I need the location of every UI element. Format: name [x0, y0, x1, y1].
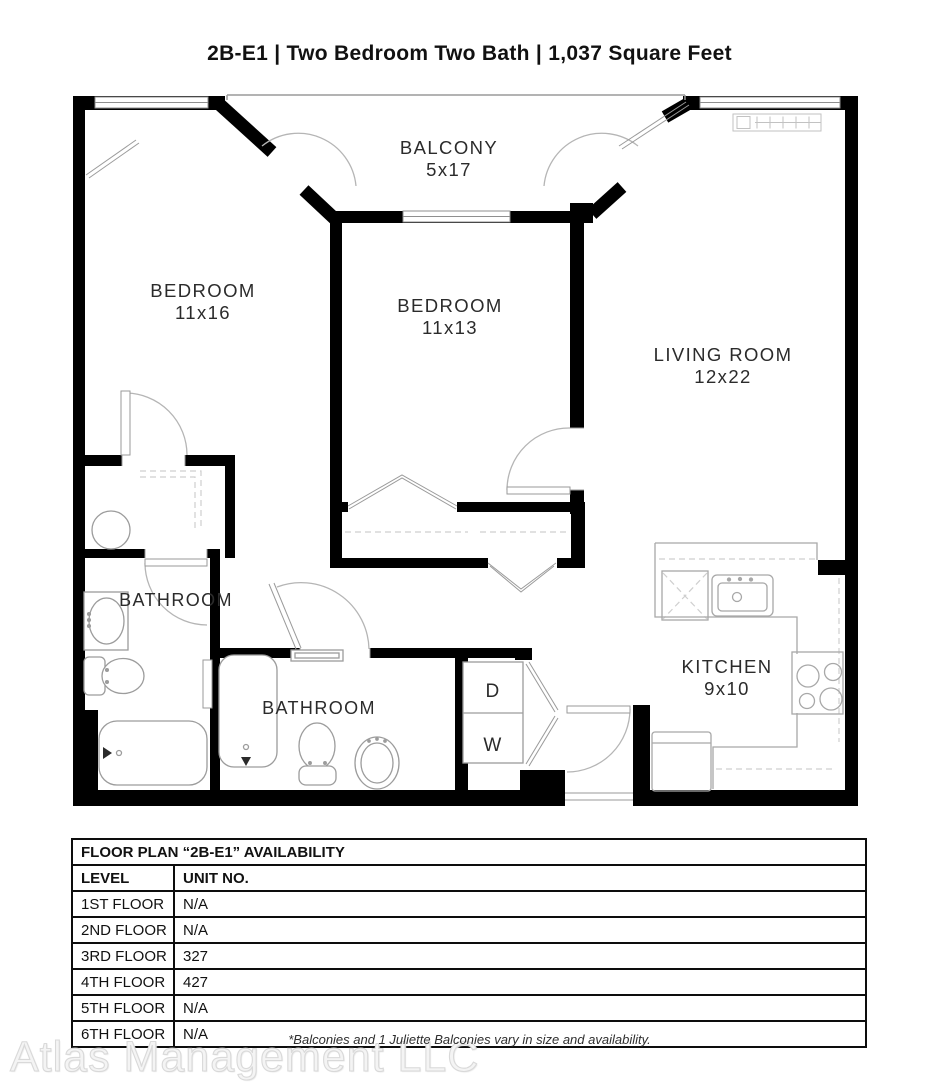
table-title: FLOOR PLAN “2B-E1” AVAILABILITY	[72, 839, 866, 865]
table-row: 3RD FLOOR 327	[72, 943, 866, 969]
level-cell: 2ND FLOOR	[72, 917, 174, 943]
floor-plan-drawing: BALCONY 5x17 BEDROOM 11x16 BEDROOM 11x13…	[0, 0, 939, 820]
unit-cell: 427	[174, 969, 866, 995]
unit-cell: 327	[174, 943, 866, 969]
door-leaves	[86, 102, 689, 713]
unit-cell: N/A	[174, 995, 866, 1021]
washer-label: W	[483, 735, 502, 756]
balcony-railing	[227, 95, 685, 100]
toilet	[84, 657, 144, 695]
table-row: 4TH FLOOR 427	[72, 969, 866, 995]
table-row: 5TH FLOOR N/A	[72, 995, 866, 1021]
stove	[792, 652, 843, 714]
sink	[355, 737, 399, 789]
column-header-level: LEVEL	[72, 865, 174, 891]
shelf	[291, 650, 343, 661]
column-header-unit-no: UNIT NO.	[174, 865, 866, 891]
room-dims-bedroom-2: 11x13	[422, 317, 478, 338]
kitchen-sink	[712, 575, 773, 616]
level-cell: 5TH FLOOR	[72, 995, 174, 1021]
room-label-bathroom-1: BATHROOM	[119, 590, 233, 610]
level-cell: 1ST FLOOR	[72, 891, 174, 917]
table-row: 2ND FLOOR N/A	[72, 917, 866, 943]
room-dims-kitchen: 9x10	[704, 678, 750, 699]
door-arcs	[125, 133, 638, 772]
table-title-row: FLOOR PLAN “2B-E1” AVAILABILITY	[72, 839, 866, 865]
dryer-label: D	[485, 681, 500, 702]
table-header-row: LEVEL UNIT NO.	[72, 865, 866, 891]
level-cell: 4TH FLOOR	[72, 969, 174, 995]
footnote: *Balconies and 1 Juliette Balconies vary…	[0, 1032, 939, 1047]
bathroom2-fixtures	[219, 650, 399, 789]
level-cell: 3RD FLOOR	[72, 943, 174, 969]
room-label-bedroom-2: BEDROOM	[397, 295, 502, 316]
bathtub	[99, 721, 207, 785]
room-label-bedroom-1: BEDROOM	[150, 280, 255, 301]
room-label-kitchen: KITCHEN	[682, 656, 773, 677]
unit-cell: N/A	[174, 917, 866, 943]
toilet	[299, 723, 336, 785]
bifold-doors	[348, 475, 558, 766]
availability-table: FLOOR PLAN “2B-E1” AVAILABILITY LEVEL UN…	[71, 838, 867, 1048]
closet-fixture	[92, 511, 130, 549]
room-dims-living-room: 12x22	[694, 366, 751, 387]
room-label-bathroom-2: BATHROOM	[262, 698, 376, 718]
unit-cell: N/A	[174, 891, 866, 917]
room-label-balcony: BALCONY	[400, 137, 498, 158]
room-dims-bedroom-1: 11x16	[175, 302, 231, 323]
baseboard-heater	[733, 114, 821, 131]
room-label-living-room: LIVING ROOM	[654, 344, 793, 365]
refrigerator	[652, 732, 711, 791]
room-dims-balcony: 5x17	[426, 159, 472, 180]
table-row: 1ST FLOOR N/A	[72, 891, 866, 917]
